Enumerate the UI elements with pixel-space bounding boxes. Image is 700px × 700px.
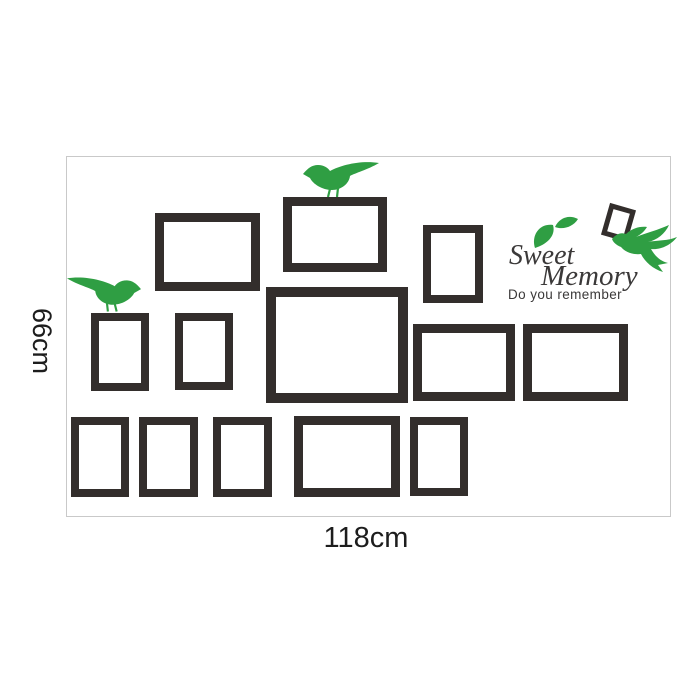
brand-subtitle: Do you remember — [508, 288, 622, 302]
frame-top-center-medium — [283, 197, 387, 272]
frame-bottom-small-3 — [213, 417, 272, 497]
frame-top-left-medium — [155, 213, 260, 291]
frame-top-right-small — [423, 225, 483, 303]
frame-bottom-small-2 — [139, 417, 198, 497]
frame-mid-left-small-1 — [91, 313, 149, 391]
frame-bottom-medium — [294, 416, 400, 497]
standing-bird-icon — [303, 161, 379, 197]
height-dimension-label: 66cm — [27, 306, 55, 376]
product-image: Sweet Memory Do you remember 66cm 118cm — [0, 0, 700, 700]
frame-center-large — [266, 287, 408, 403]
width-dimension-label: 118cm — [306, 524, 426, 553]
frame-mid-right-medium-2 — [523, 324, 628, 401]
frame-bottom-small-4 — [410, 417, 468, 496]
frame-mid-right-medium-1 — [413, 324, 515, 401]
standing-bird-mirrored-icon — [67, 276, 141, 312]
frame-bottom-small-1 — [71, 417, 129, 497]
frame-mid-left-small-2 — [175, 313, 233, 390]
